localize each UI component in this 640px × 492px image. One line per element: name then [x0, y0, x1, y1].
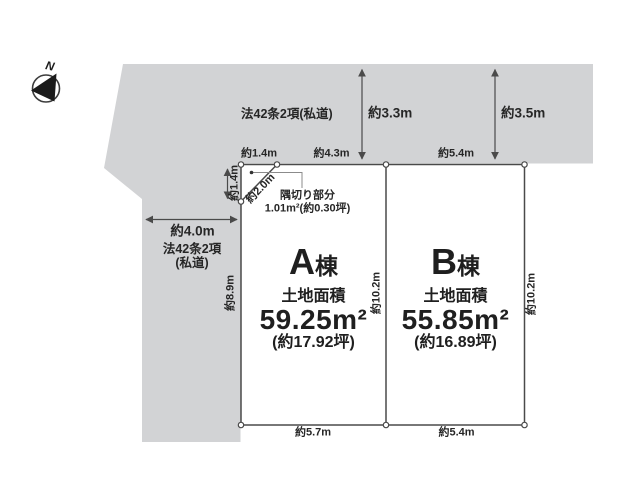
- plot-a-name: A棟: [241, 245, 386, 283]
- plot-a-area-m2: 59.25m²: [241, 307, 386, 332]
- dim-plot-a-frontage-top: 約4.3m: [313, 149, 349, 160]
- dim-plot-a-frontage-bottom: 約5.7m: [295, 428, 331, 439]
- plot-a-letter: A: [289, 241, 315, 282]
- compass-icon: [31, 74, 60, 103]
- dim-road-width-4-0m: 約4.0m: [170, 224, 214, 238]
- road-left-label-line2: (私道): [175, 257, 208, 270]
- dim-road-width-3-3m: 約3.3m: [368, 106, 412, 120]
- dim-road-width-3-5m: 約3.5m: [501, 106, 545, 120]
- plot-a-suffix: 棟: [315, 253, 338, 279]
- plot-b-suffix: 棟: [457, 253, 480, 279]
- dim-plot-b-frontage-bottom: 約5.4m: [438, 428, 474, 439]
- road-left-label-line1: 法42条2項: [163, 243, 221, 256]
- dim-corner-top-1-4m: 約1.4m: [241, 148, 277, 159]
- plot-a-area-tsubo: (約17.92坪): [241, 335, 386, 351]
- plot-a-area-caption: 土地面積: [241, 288, 386, 305]
- corner-cut-title: 隅切り部分: [280, 191, 335, 202]
- plot-b-name: B棟: [386, 245, 525, 283]
- corner-cut-area: 1.01m²(約0.30坪): [265, 204, 351, 215]
- road-top-label: 法42条2項(私道): [241, 108, 333, 121]
- dim-plot-b-depth: 約10.2m: [526, 273, 537, 315]
- dim-plot-b-frontage-top: 約5.4m: [438, 149, 474, 160]
- plot-b-area-m2: 55.85m²: [386, 307, 525, 332]
- plot-a-info: A棟 土地面積 59.25m² (約17.92坪): [241, 245, 386, 351]
- land-plot-diagram: N 法42条2項(私道) 約3.3m 約3.5m 約1.4m 約4.3m 約5.…: [0, 0, 640, 492]
- plot-b-area-caption: 土地面積: [386, 288, 525, 305]
- plot-b-info: B棟 土地面積 55.85m² (約16.89坪): [386, 245, 525, 351]
- plot-b-area-tsubo: (約16.89坪): [386, 335, 525, 351]
- corner-cut-leader-dot: [250, 171, 254, 175]
- dim-corner-left-1-4m: 約1.4m: [229, 165, 240, 201]
- dim-left-boundary-8-9m: 約8.9m: [225, 275, 236, 311]
- plot-b-letter: B: [431, 241, 457, 282]
